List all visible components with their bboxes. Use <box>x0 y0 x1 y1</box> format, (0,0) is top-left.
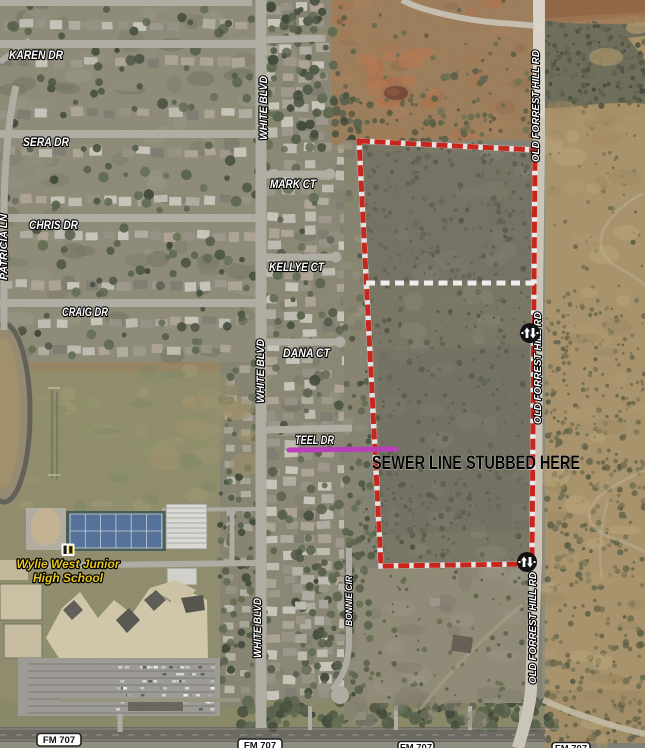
svg-text:FM 707: FM 707 <box>555 744 587 748</box>
svg-text:BONNIE CIR: BONNIE CIR <box>344 576 355 626</box>
svg-text:DANA CT: DANA CT <box>283 346 331 360</box>
svg-text:SERA DR: SERA DR <box>23 135 69 149</box>
svg-text:OLD FORREST HILL RD: OLD FORREST HILL RD <box>527 572 539 684</box>
svg-text:WHITE BLVD: WHITE BLVD <box>258 76 270 140</box>
svg-text:SEWER LINE STUBBED HERE: SEWER LINE STUBBED HERE <box>372 453 580 474</box>
svg-text:FM 707: FM 707 <box>400 743 432 748</box>
svg-text:FM 707: FM 707 <box>244 741 276 748</box>
svg-text:High School: High School <box>33 571 104 585</box>
svg-text:PATRICIA LN: PATRICIA LN <box>0 214 10 280</box>
svg-text:FM 707: FM 707 <box>43 735 75 746</box>
svg-text:MARK CT: MARK CT <box>270 177 317 191</box>
svg-text:KAREN DR: KAREN DR <box>9 48 63 62</box>
svg-text:WHITE BLVD: WHITE BLVD <box>255 339 267 403</box>
svg-text:CHRIS DR: CHRIS DR <box>29 218 78 232</box>
svg-text:TEEL DR: TEEL DR <box>295 433 334 447</box>
svg-text:KELLYE CT: KELLYE CT <box>269 260 325 274</box>
svg-text:Wylie West Junior: Wylie West Junior <box>17 557 121 571</box>
svg-text:OLD FORREST HILL RD: OLD FORREST HILL RD <box>530 50 542 162</box>
svg-text:CRAIG DR: CRAIG DR <box>62 305 108 319</box>
svg-text:WHITE BLVD: WHITE BLVD <box>252 598 264 658</box>
